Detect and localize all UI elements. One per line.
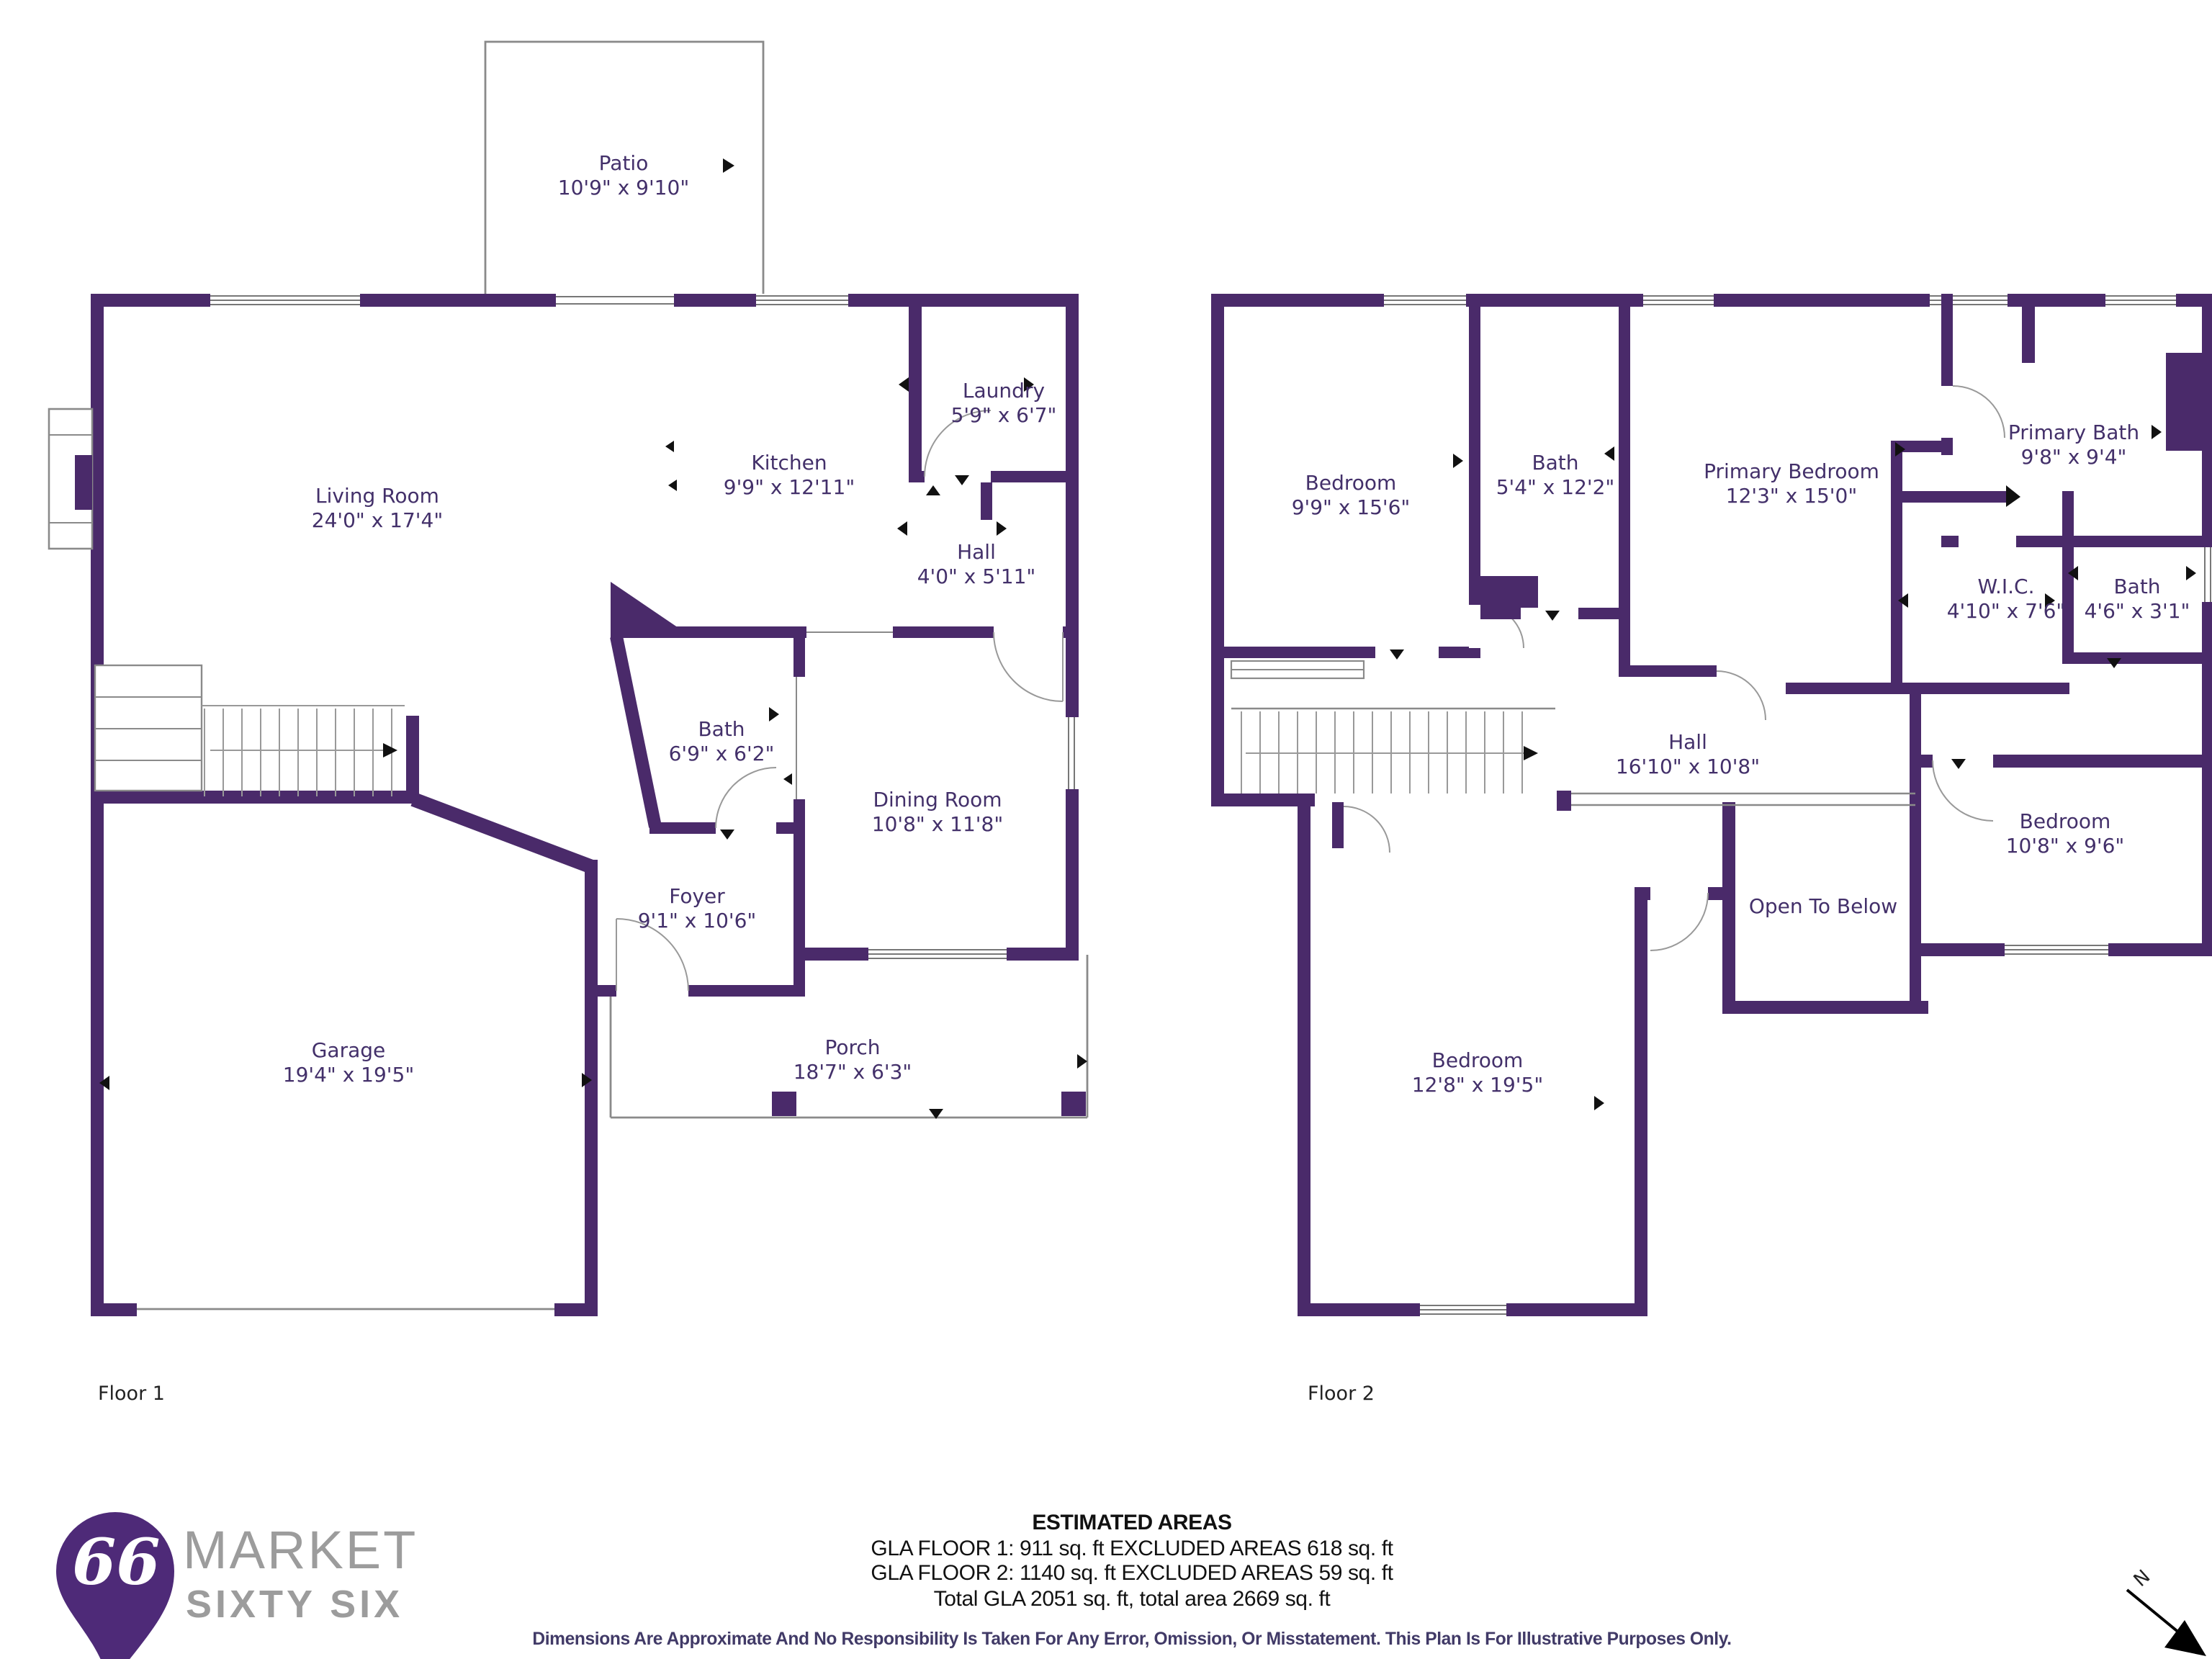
floor1-caption: Floor 1 <box>98 1382 165 1406</box>
room-label-patio: Patio10'9" x 9'10" <box>558 153 689 200</box>
room-label-bath-f1: Bath6'9" x 6'2" <box>669 719 775 766</box>
room-label-bath-tl: Bath5'4" x 12'2" <box>1496 452 1615 500</box>
logo-badge-66: 66 <box>72 1527 158 1600</box>
room-label-wic: W.I.C.4'10" x 7'6" <box>1947 576 2066 624</box>
disclaimer-text: Dimensions Are Approximate And No Respon… <box>0 1629 2212 1649</box>
room-label-dining-room: Dining Room10'8" x 11'8" <box>872 789 1003 837</box>
room-label-porch: Porch18'7" x 6'3" <box>793 1037 912 1084</box>
room-label-open-to-below: Open To Below <box>1749 896 1897 920</box>
room-label-bedroom-bottom: Bedroom12'8" x 19'5" <box>1412 1050 1543 1097</box>
room-label-foyer: Foyer9'1" x 10'6" <box>638 886 757 933</box>
logo-brand-line2: SIXTY SIX <box>186 1583 403 1627</box>
floor1-walls <box>49 42 1087 1316</box>
room-label-laundry: Laundry5'9" x 6'7" <box>951 380 1057 428</box>
room-label-bath-small: Bath4'6" x 3'1" <box>2085 576 2190 624</box>
room-label-living-room: Living Room24'0" x 17'4" <box>312 485 443 533</box>
room-label-kitchen: Kitchen9'9" x 12'11" <box>724 452 855 500</box>
floorplan-page: Patio10'9" x 9'10" Living Room24'0" x 17… <box>0 0 2212 1659</box>
room-label-garage: Garage19'4" x 19'5" <box>283 1040 414 1087</box>
floor2-caption: Floor 2 <box>1308 1382 1375 1406</box>
room-label-primary-bath: Primary Bath9'8" x 9'4" <box>2008 422 2139 469</box>
room-label-primary-bedroom: Primary Bedroom12'3" x 15'0" <box>1704 461 1879 508</box>
floorplan-drawing <box>0 0 2212 1659</box>
room-label-bedroom-right: Bedroom10'8" x 9'6" <box>2006 811 2125 858</box>
room-label-hall-f1: Hall4'0" x 5'11" <box>917 541 1036 589</box>
room-label-hall-f2: Hall16'10" x 10'8" <box>1616 732 1760 779</box>
room-label-bedroom-tl: Bedroom9'9" x 15'6" <box>1292 472 1411 520</box>
logo-brand-line1: MARKET <box>183 1521 418 1581</box>
